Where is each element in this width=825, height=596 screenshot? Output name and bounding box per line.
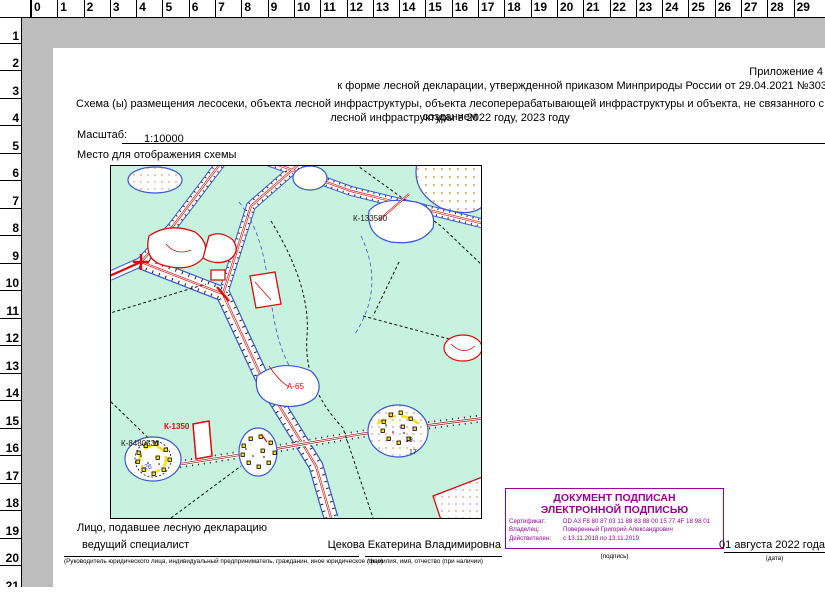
ruler-left-number: 7 [0, 181, 21, 209]
ruler-top-number: 27 [741, 0, 767, 17]
ruler-left-number: 4 [0, 99, 21, 127]
ruler-left: 0123456789101112131415161718192021 [0, 18, 22, 587]
ruler-left-number: 17 [0, 456, 21, 484]
map-label: К-8480530 [121, 439, 160, 448]
ruler-top-number: 28 [767, 0, 793, 17]
ruler-left-number: 3 [0, 71, 21, 99]
appendix-line2: к форме лесной декларации, утвержденной … [337, 80, 825, 93]
ruler-left-number: 21 [0, 566, 21, 587]
ruler-top-number: 8 [241, 0, 267, 17]
signature-note: (подпись) [505, 553, 724, 560]
ruler-top-number: 9 [268, 0, 294, 17]
ruler-top-number: 17 [478, 0, 504, 17]
map-svg: К-133580А-65К-1350К-8480530261917 [111, 166, 481, 518]
ruler-left-number: 8 [0, 209, 21, 237]
position-underline [64, 556, 359, 557]
ruler-top-number: 16 [452, 0, 478, 17]
document-page: Приложение 4 к форме лесной декларации, … [53, 48, 825, 596]
map-label: К-133580 [353, 214, 388, 223]
stamp-owner-label: Владелец: [509, 526, 561, 534]
scale-value: 1:10000 [122, 133, 184, 145]
date-note: (дата) [724, 555, 825, 562]
declarant-position: ведущий специалист [82, 539, 189, 552]
ruler-top-number: 5 [162, 0, 188, 17]
ruler-left-number: 6 [0, 154, 21, 182]
map-label: 17 [409, 449, 417, 456]
ruler-left-number: 9 [0, 236, 21, 264]
map-label: 19 [405, 437, 413, 444]
ruler-left-number: 12 [0, 319, 21, 347]
stamp-cert-label: Сертификат: [509, 518, 561, 526]
ruler-top-number: 20 [557, 0, 583, 17]
ruler-left-number: 13 [0, 346, 21, 374]
ruler-top-number: 21 [583, 0, 609, 17]
ruler-left-number: 15 [0, 401, 21, 429]
scale-label: Масштаб: [77, 129, 127, 142]
date-underline [724, 552, 825, 553]
name-note: (фамилия, имя, отчество (при наличии) [367, 558, 483, 565]
ruler-top-number: 15 [425, 0, 451, 17]
ruler-left-number: 18 [0, 484, 21, 512]
ruler-top-number: 1 [57, 0, 83, 17]
ruler-top-number: 6 [189, 0, 215, 17]
ruler-top-number: 26 [715, 0, 741, 17]
ruler-left-number: 1 [0, 18, 21, 44]
map-placeholder-label: Место для отображения схемы [77, 149, 236, 162]
doc-title-line2: лесной инфраструктуры в 2022 году, 2023 … [53, 112, 825, 125]
stamp-valid-value: с 13.11.2018 по 13.11.2019 [563, 535, 720, 543]
ruler-top-number: 12 [347, 0, 373, 17]
ruler-top-number: 2 [84, 0, 110, 17]
ruler-top-number: 11 [320, 0, 346, 17]
map-label: К-1350 [164, 422, 190, 431]
ruler-top-number: 25 [688, 0, 714, 17]
ruler-left-number: 10 [0, 264, 21, 292]
stamp-title-line2: ЭЛЕКТРОННОЙ ПОДПИСЬЮ [506, 504, 723, 516]
ruler-corner [0, 0, 31, 18]
declarant-section-label: Лицо, подавшее лесную декларацию [77, 522, 267, 535]
digital-signature-stamp: ДОКУМЕНТ ПОДПИСАН ЭЛЕКТРОННОЙ ПОДПИСЬЮ С… [505, 488, 724, 549]
declaration-date: 01 августа 2022 года [719, 539, 825, 552]
ruler-top-number: 24 [662, 0, 688, 17]
ruler-top-number: 4 [136, 0, 162, 17]
ruler-left-number: 20 [0, 539, 21, 567]
ruler-left-number: 2 [0, 44, 21, 72]
position-note: (Руководитель юридического лица, индивид… [64, 558, 383, 565]
ruler-top-number: 3 [110, 0, 136, 17]
stamp-title-line1: ДОКУМЕНТ ПОДПИСАН [506, 489, 723, 504]
ruler-top-number: 19 [531, 0, 557, 17]
map-label: А-65 [287, 382, 304, 391]
ruler-left-number: 19 [0, 511, 21, 539]
stamp-owner-value: Поверенный Григорий Александрович [563, 526, 720, 534]
ruler-top: 0123456789101112131415161718192021222324… [31, 0, 825, 18]
ruler-top-number: 29 [794, 0, 820, 17]
stamp-cert-value: DD A3 F8 80 87 03 11 88 83 88 00 15 77 4… [563, 518, 720, 526]
ruler-top-number: 22 [610, 0, 636, 17]
map-label: 26 [144, 464, 152, 471]
ruler-top-number: 10 [294, 0, 320, 17]
declarant-name: Цекова Екатерина Владимировна [328, 539, 501, 552]
ruler-left-number: 11 [0, 291, 21, 319]
ruler-left-number: 5 [0, 126, 21, 154]
ruler-top-number: 23 [636, 0, 662, 17]
ruler-top-number: 0 [31, 0, 57, 17]
ruler-top-number: 7 [215, 0, 241, 17]
name-underline [365, 556, 502, 557]
workspace: Приложение 4 к форме лесной декларации, … [22, 18, 825, 587]
ruler-left-number: 14 [0, 374, 21, 402]
stamp-valid-label: Действителен: [509, 535, 561, 543]
ruler-left-number: 16 [0, 429, 21, 457]
ruler-top-number: 13 [373, 0, 399, 17]
forest-map: К-133580А-65К-1350К-8480530261917 [110, 165, 482, 519]
ruler-top-number: 14 [399, 0, 425, 17]
scale-field[interactable]: 1:10000 [122, 129, 825, 144]
ruler-top-number: 18 [504, 0, 530, 17]
appendix-line1: Приложение 4 [749, 66, 823, 79]
